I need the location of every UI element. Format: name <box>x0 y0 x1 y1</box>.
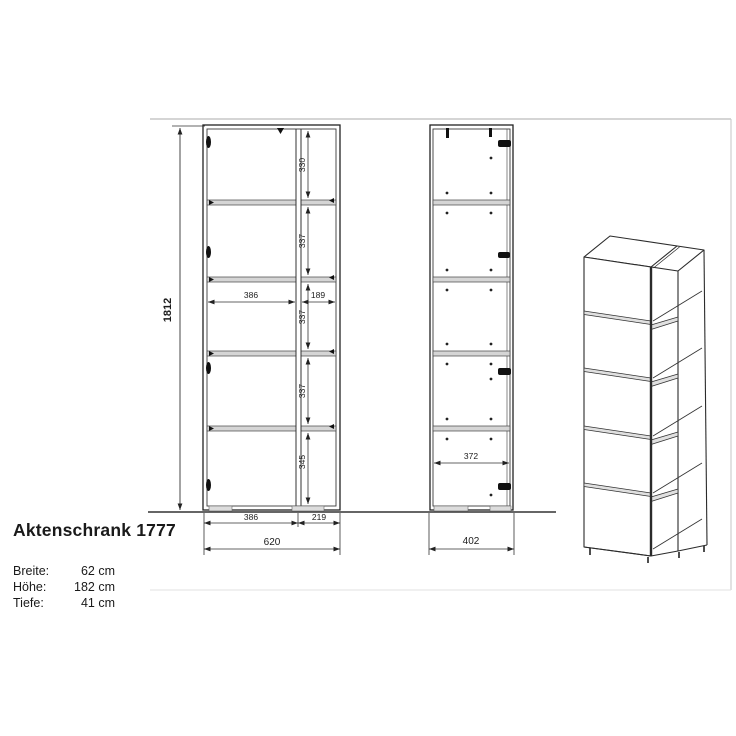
dim-compartment-4: 337 <box>297 384 307 398</box>
dim-inner-depth: 372 <box>464 451 478 461</box>
dim-total-width: 620 <box>264 537 281 548</box>
bottom-width-dimensions: 386 219 620 <box>204 512 340 555</box>
spec-label-height: Höhe: <box>13 579 63 595</box>
technical-drawing: 330 337 337 337 345 1812 386 189 386 219 <box>0 0 736 736</box>
spec-value-width: 62 cm <box>63 563 115 579</box>
dim-bottom-width-left: 386 <box>244 512 258 522</box>
dim-bottom-width-right: 219 <box>312 512 326 522</box>
dim-inner-width-left: 386 <box>244 290 258 300</box>
total-height-dimension: 1812 <box>162 126 205 510</box>
perspective-drawing <box>584 236 707 563</box>
dim-compartment-1: 330 <box>297 158 307 172</box>
dim-compartment-3: 337 <box>297 310 307 324</box>
front-view-drawing <box>203 125 340 511</box>
product-info-block: Aktenschrank 1777 Breite: 62 cm Höhe: 18… <box>13 520 176 611</box>
dim-total-height: 1812 <box>162 298 174 322</box>
dim-inner-width-right: 189 <box>311 290 325 300</box>
spec-label-width: Breite: <box>13 563 63 579</box>
dim-compartment-2: 337 <box>297 234 307 248</box>
dim-compartment-5: 345 <box>297 455 307 469</box>
spec-value-height: 182 cm <box>63 579 115 595</box>
spec-value-depth: 41 cm <box>63 595 115 611</box>
dim-total-depth: 402 <box>463 536 480 547</box>
spec-label-depth: Tiefe: <box>13 595 63 611</box>
product-title: Aktenschrank 1777 <box>13 520 176 541</box>
spec-row-depth: Tiefe: 41 cm <box>13 595 176 611</box>
perspective-column-shelves <box>651 317 678 502</box>
spec-row-width: Breite: 62 cm <box>13 563 176 579</box>
product-dimension-sheet: 330 337 337 337 345 1812 386 189 386 219 <box>0 0 736 736</box>
spec-row-height: Höhe: 182 cm <box>13 579 176 595</box>
